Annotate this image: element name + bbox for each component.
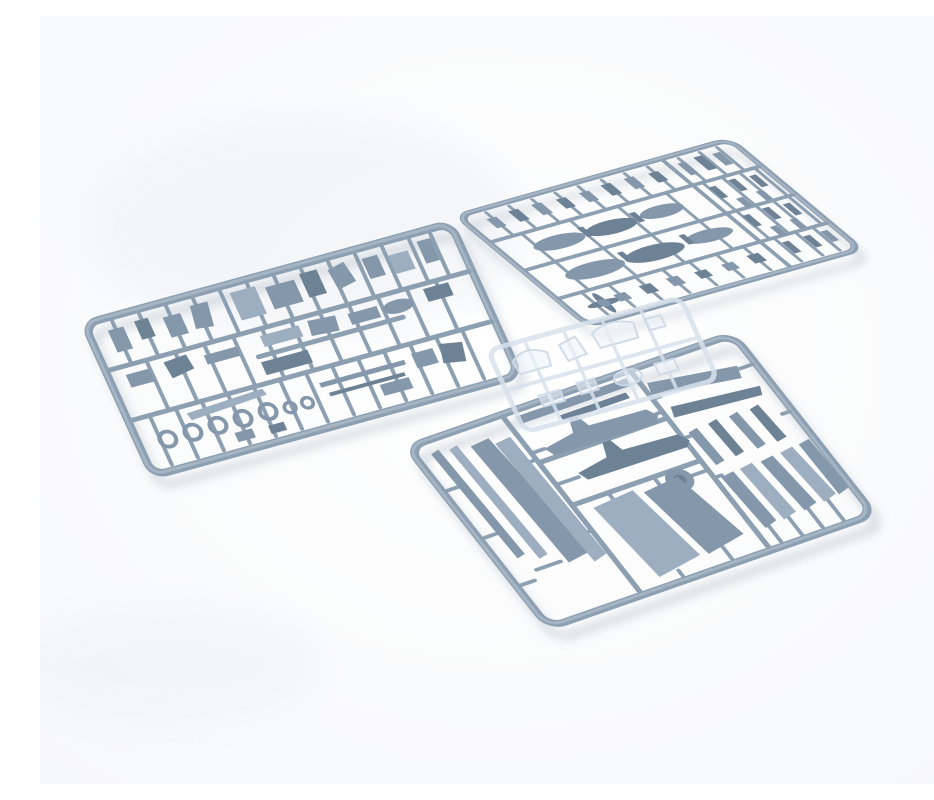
photo-figure: Product photograph of three grey-blue in… [40, 16, 934, 784]
scene-svg [40, 16, 934, 784]
